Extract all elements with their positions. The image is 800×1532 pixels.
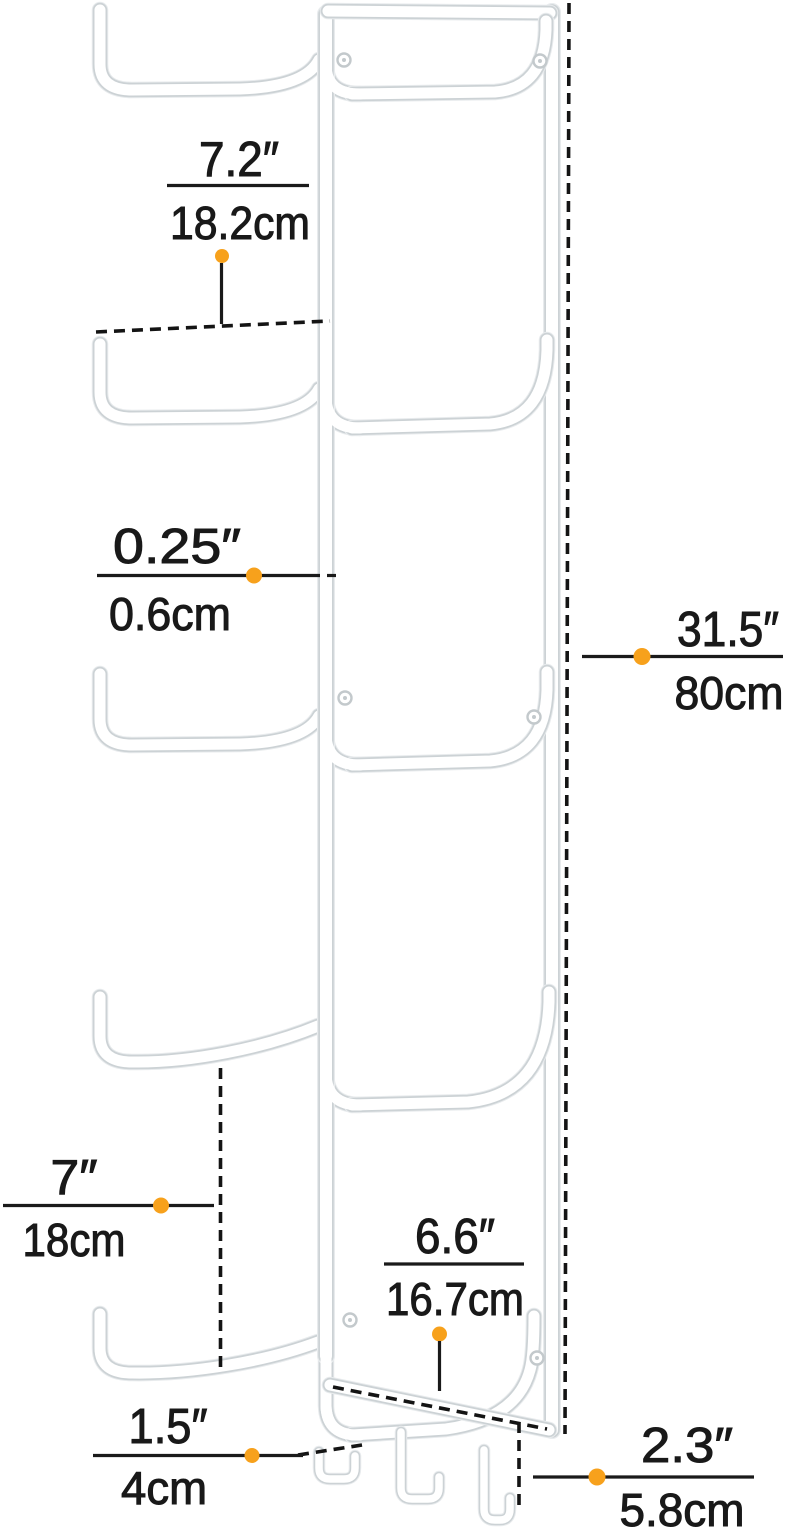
- svg-text:18.2cm: 18.2cm: [170, 197, 310, 249]
- svg-text:7.2″: 7.2″: [199, 133, 279, 187]
- svg-text:16.7cm: 16.7cm: [386, 1273, 524, 1325]
- svg-text:1.5″: 1.5″: [129, 1400, 208, 1454]
- svg-text:0.25″: 0.25″: [113, 520, 241, 574]
- svg-text:80cm: 80cm: [675, 667, 784, 719]
- svg-text:4cm: 4cm: [121, 1462, 207, 1514]
- svg-text:31.5″: 31.5″: [677, 603, 779, 657]
- svg-text:0.6cm: 0.6cm: [109, 588, 231, 640]
- svg-text:2.3″: 2.3″: [641, 1419, 733, 1473]
- svg-text:5.8cm: 5.8cm: [620, 1484, 745, 1532]
- svg-text:7″: 7″: [51, 1151, 98, 1205]
- svg-text:6.6″: 6.6″: [415, 1210, 495, 1264]
- svg-text:18cm: 18cm: [23, 1214, 126, 1266]
